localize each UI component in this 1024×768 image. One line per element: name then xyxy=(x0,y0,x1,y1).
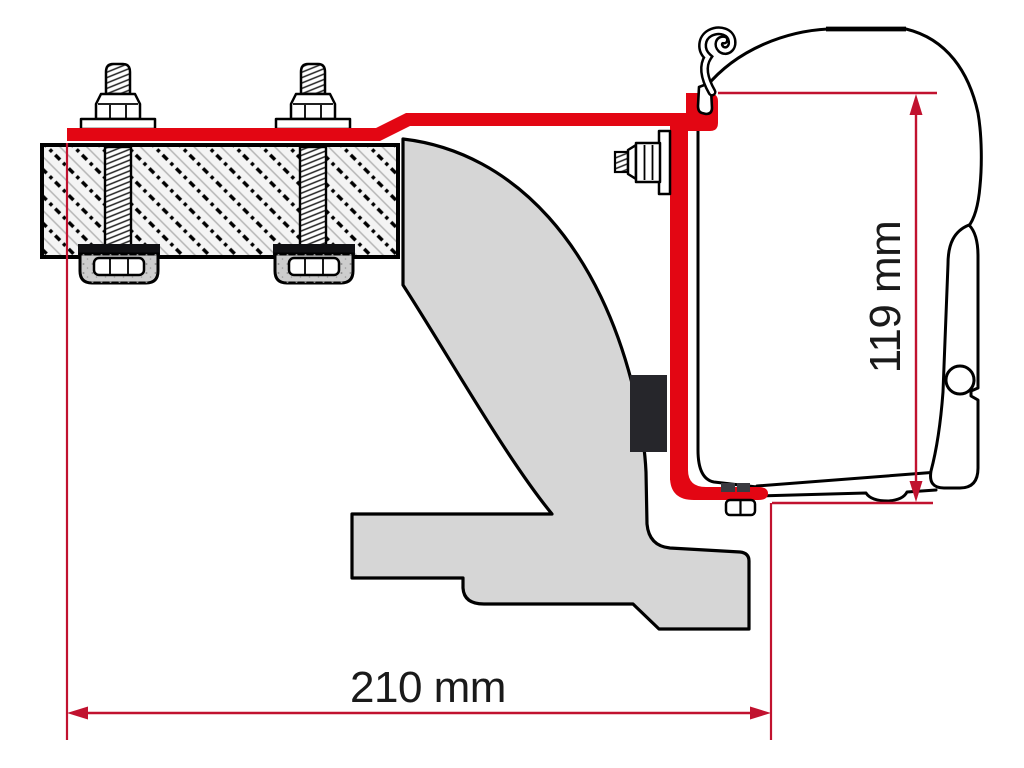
roof-panel xyxy=(42,145,398,257)
awning-case xyxy=(698,28,982,501)
bolt-stud xyxy=(301,64,325,94)
width-dim-label: 210 mm xyxy=(350,663,506,712)
arrow-left xyxy=(67,707,88,720)
arrow-right xyxy=(750,707,771,720)
bracket-vertical-bar xyxy=(670,113,688,480)
washer xyxy=(81,119,155,129)
rod-right xyxy=(300,147,326,259)
embedded-nut xyxy=(94,258,144,275)
anchor-block-right xyxy=(273,244,355,283)
mounting-bolt-right xyxy=(276,64,350,129)
bolt-nut xyxy=(96,94,140,119)
vehicle-body-profile xyxy=(352,139,749,629)
lead-rail-pin xyxy=(946,366,974,394)
spacer-block xyxy=(630,375,667,452)
awning-adapter-cross-section-diagram: 210 mm 119 mm xyxy=(0,0,1024,768)
embedded-nut xyxy=(289,258,339,275)
bolt-nut xyxy=(291,94,335,119)
clamp-tab xyxy=(737,483,750,492)
bolt-stud xyxy=(106,64,130,94)
washer xyxy=(276,119,350,129)
bracket-side-bolt xyxy=(615,131,670,194)
side-bolt-tip xyxy=(615,152,628,172)
height-dim-label: 119 mm xyxy=(861,221,910,374)
diagram-stage: 210 mm 119 mm xyxy=(0,0,1024,768)
bracket-plate xyxy=(67,113,706,141)
mounting-bolt-left xyxy=(81,64,155,129)
rod-left xyxy=(105,147,131,259)
anchor-block-left xyxy=(78,244,160,283)
side-bolt-nut xyxy=(636,143,660,182)
panel-core xyxy=(42,145,398,257)
clamp-tab xyxy=(721,483,735,492)
